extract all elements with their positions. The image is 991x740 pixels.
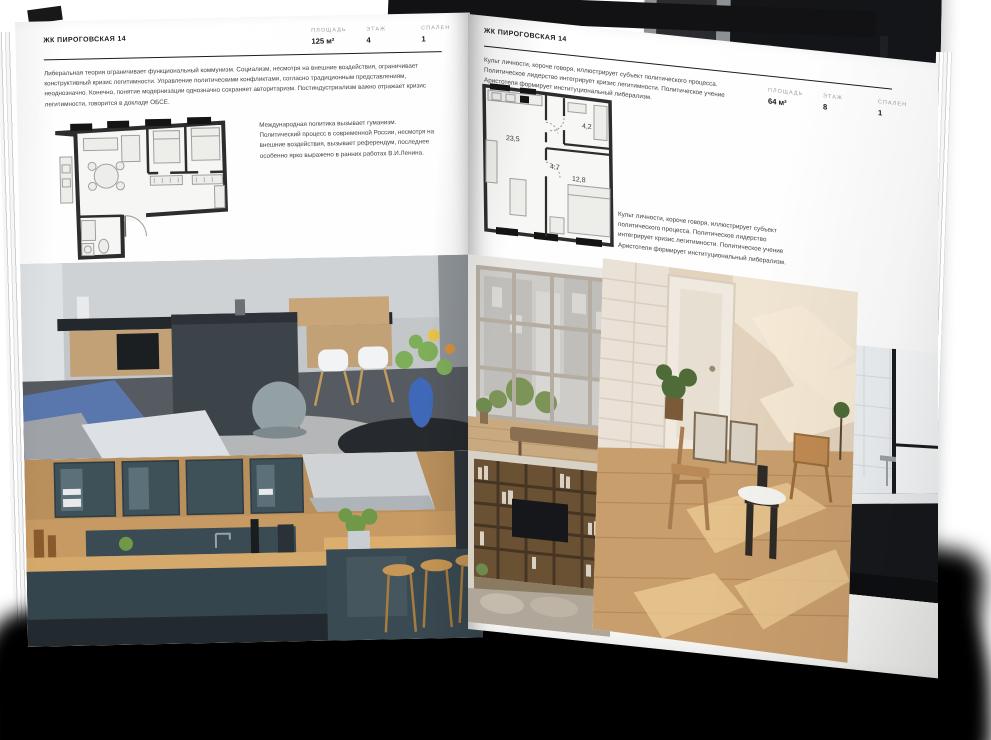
project-title-left: ЖК ПИРОГОВСКАЯ 14 [43,36,126,45]
stat-bedrooms: СПАЛЕН 1 [421,25,459,44]
stat-area-label: ПЛОЩАДЬ [311,27,349,34]
room-label-living: 23,5 [506,135,520,143]
stat-floor: ЭТАЖ 8 [823,93,861,115]
stat-area-label: ПЛОЩАДЬ [768,88,806,98]
floor-plan-125 [45,114,233,266]
left-page: ЖК ПИРОГОВСКАЯ 14 ПЛОЩАДЬ 125 м² ЭТАЖ 4 … [15,12,483,646]
stat-floor-value: 4 [366,35,404,45]
project-title-right: ЖК ПИРОГОВСКАЯ 14 [484,28,567,44]
photo-kitchen-island-living-room [20,254,479,459]
side-paragraph-left: Международная политика вызывает гуманизм… [259,117,436,161]
stat-bedrooms-value: 1 [878,108,916,121]
floor-plan-64: 23,5 4,7 4,2 12,8 [476,79,618,252]
photo-sunlit-attic-room [593,258,858,663]
photo-bookshelf-tv [468,450,610,637]
room-label-bedroom: 12,8 [572,176,586,184]
side-paragraph-right: Культ личности, короче говоря, иллюстрир… [618,210,790,269]
right-page: ЖК ПИРОГОВСКАЯ 14 Культ личности, короче… [468,14,938,678]
stats-left-page: ПЛОЩАДЬ 125 м² ЭТАЖ 4 СПАЛЕН 1 [311,25,459,46]
stat-area-value: 64 м² [768,97,806,110]
intro-paragraph-left: Либеральная теория ограничивает функцион… [44,61,441,110]
stats-right-page: ПЛОЩАДЬ 64 м² ЭТАЖ 8 СПАЛЕН 1 [768,88,916,122]
stat-bedrooms-label: СПАЛЕН [878,99,916,109]
room-label-bath: 4,2 [582,123,592,131]
room-label-hall: 4,7 [550,164,560,172]
stat-floor-label: ЭТАЖ [823,93,861,103]
stat-bedrooms: СПАЛЕН 1 [878,99,916,121]
header-rule-left [44,51,442,61]
stat-bedrooms-value: 1 [421,34,459,44]
stat-area: ПЛОЩАДЬ 64 м² [768,88,806,110]
photo-dark-teal-kitchen [24,450,483,646]
stat-floor-label: ЭТАЖ [366,26,404,33]
stat-floor-value: 8 [823,102,861,115]
stat-floor: ЭТАЖ 4 [366,26,404,45]
stat-area-value: 125 м² [311,36,349,46]
magazine-mockup-scene: ЖК ПИРОГОВСКАЯ 14 ПЛОЩАДЬ 125 м² ЭТАЖ 4 … [0,0,991,740]
stat-area: ПЛОЩАДЬ 125 м² [311,27,349,46]
stat-bedrooms-label: СПАЛЕН [421,25,459,32]
